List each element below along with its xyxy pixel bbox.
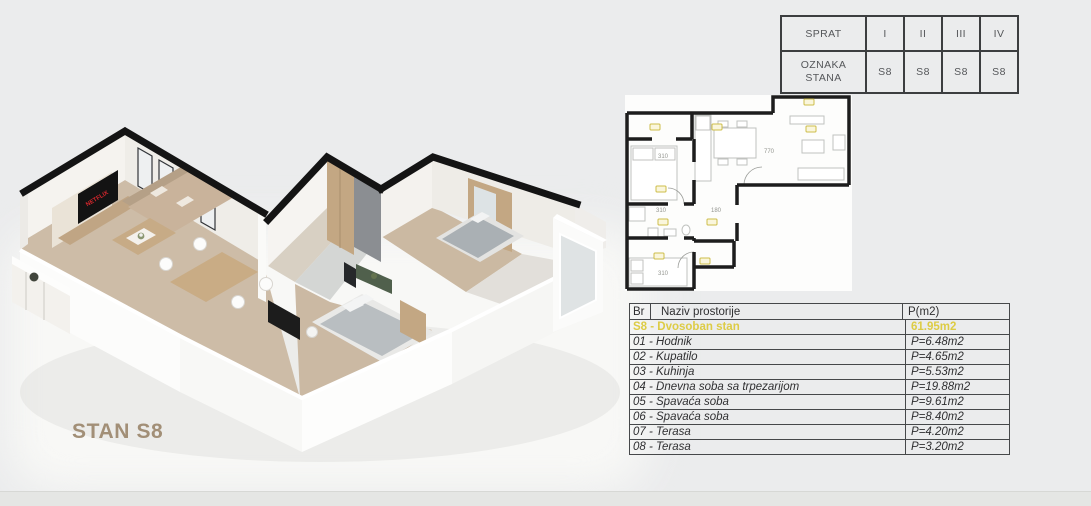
pillow-symbol [631,273,643,284]
dim-label: 310 [656,208,667,214]
room-area: P=8.40m2 [905,410,1009,424]
room-area: P=19.88m2 [905,380,1009,394]
floor-unit-table: SPRAT I II III IV OZNAKA STANA S8 S8 S8 … [780,15,1019,94]
sofa-symbol [798,168,844,180]
room-row: 08 - Terasa P=3.20m2 [630,439,1009,454]
dim-label: 310 [658,154,669,160]
room-row: 04 - Dnevna soba sa trpezarijom P=19.88m… [630,379,1009,394]
room-area: P=4.65m2 [905,350,1009,364]
room-tag [650,124,660,130]
floor-cell: IV [980,16,1018,51]
unit-title: STAN S8 [72,420,163,444]
outer-wall-left [20,190,28,250]
chair-symbol [737,159,747,165]
chair-icon [232,296,245,309]
room-tag [656,186,666,192]
chair-symbol [718,159,728,165]
room-row: 02 - Kupatilo P=4.65m2 [630,349,1009,364]
room-area: P=6.48m2 [905,335,1009,349]
floorplan-2d: 310 310 180 770 310 [614,88,866,300]
unit-row: OZNAKA STANA S8 S8 S8 S8 [781,51,1018,93]
pillow-symbol [631,260,643,271]
room-name: 06 - Spavaća soba [630,410,905,424]
room-area: P=3.20m2 [905,440,1009,454]
bottom-strip [0,491,1091,506]
tv-console-symbol [790,116,824,124]
unit-cell: S8 [942,51,980,93]
room-tag [707,219,717,225]
chair-icon [260,278,273,291]
room-row: 06 - Spavaća soba P=8.40m2 [630,409,1009,424]
room-row: 07 - Terasa P=4.20m2 [630,424,1009,439]
rooms-table-header: Br Naziv prostorije P(m2) [630,304,1009,319]
isometric-floorplan-3d: NETFLIX [8,108,633,468]
stove-symbol [696,116,710,130]
pillow-symbol [633,148,653,160]
header-naziv: Naziv prostorije [651,306,740,318]
room-name: 02 - Kupatilo [630,350,905,364]
room-name: 01 - Hodnik [630,335,905,349]
room-row: 03 - Kuhinja P=5.53m2 [630,364,1009,379]
header-name-cell: Br Naziv prostorije [630,304,902,319]
dining-table-symbol [714,128,756,158]
room-row: 05 - Spavaća soba P=9.61m2 [630,394,1009,409]
floor-cell: II [904,16,942,51]
room-area: P=9.61m2 [905,395,1009,409]
floor-cell: III [942,16,980,51]
summary-area: 61.95m2 [905,320,1009,334]
header-br: Br [630,304,651,319]
flower-bloom [139,233,143,237]
room-tag [804,99,814,105]
shower-symbol [629,207,645,221]
unit-cell: S8 [980,51,1018,93]
room-name: 04 - Dnevna soba sa trpezarijom [630,380,905,394]
room-tag [658,219,668,225]
room-tag [712,124,722,130]
room-area: P=4.20m2 [905,425,1009,439]
floor-row: SPRAT I II III IV [781,16,1018,51]
room-name: 07 - Terasa [630,425,905,439]
header-area: P(m2) [902,304,1009,319]
dim-label: 180 [711,208,722,214]
balcony-plant [30,273,39,282]
floor-row-header: SPRAT [781,16,866,51]
summary-row: S8 - Dvosoban stan 61.95m2 [630,319,1009,334]
room-tag [700,258,710,264]
desk-chair [307,327,318,338]
page: NETFLIX [0,0,1091,506]
room-name: 05 - Spavaća soba [630,395,905,409]
washer-symbol [648,228,658,237]
unit-cell: S8 [904,51,942,93]
room-row: 01 - Hodnik P=6.48m2 [630,334,1009,349]
toilet-symbol [682,225,690,235]
floor-cell: I [866,16,904,51]
room-tag [654,253,664,259]
unit-row-header: OZNAKA STANA [781,51,866,93]
chair-icon [160,258,173,271]
chair-icon [194,238,207,251]
coffee-table-symbol [802,140,824,153]
dim-label: 310 [658,271,669,277]
summary-name: S8 - Dvosoban stan [630,320,905,334]
dim-label: 770 [764,149,775,155]
room-name: 03 - Kuhinja [630,365,905,379]
rooms-table: Br Naziv prostorije P(m2) S8 - Dvosoban … [629,303,1010,455]
bath-plant [371,273,377,279]
armchair-symbol [833,135,845,150]
room-tag [806,126,816,132]
room-area: P=5.53m2 [905,365,1009,379]
room-name: 08 - Terasa [630,440,905,454]
chair-symbol [737,121,747,127]
unit-cell: S8 [866,51,904,93]
sink-symbol [664,229,676,236]
